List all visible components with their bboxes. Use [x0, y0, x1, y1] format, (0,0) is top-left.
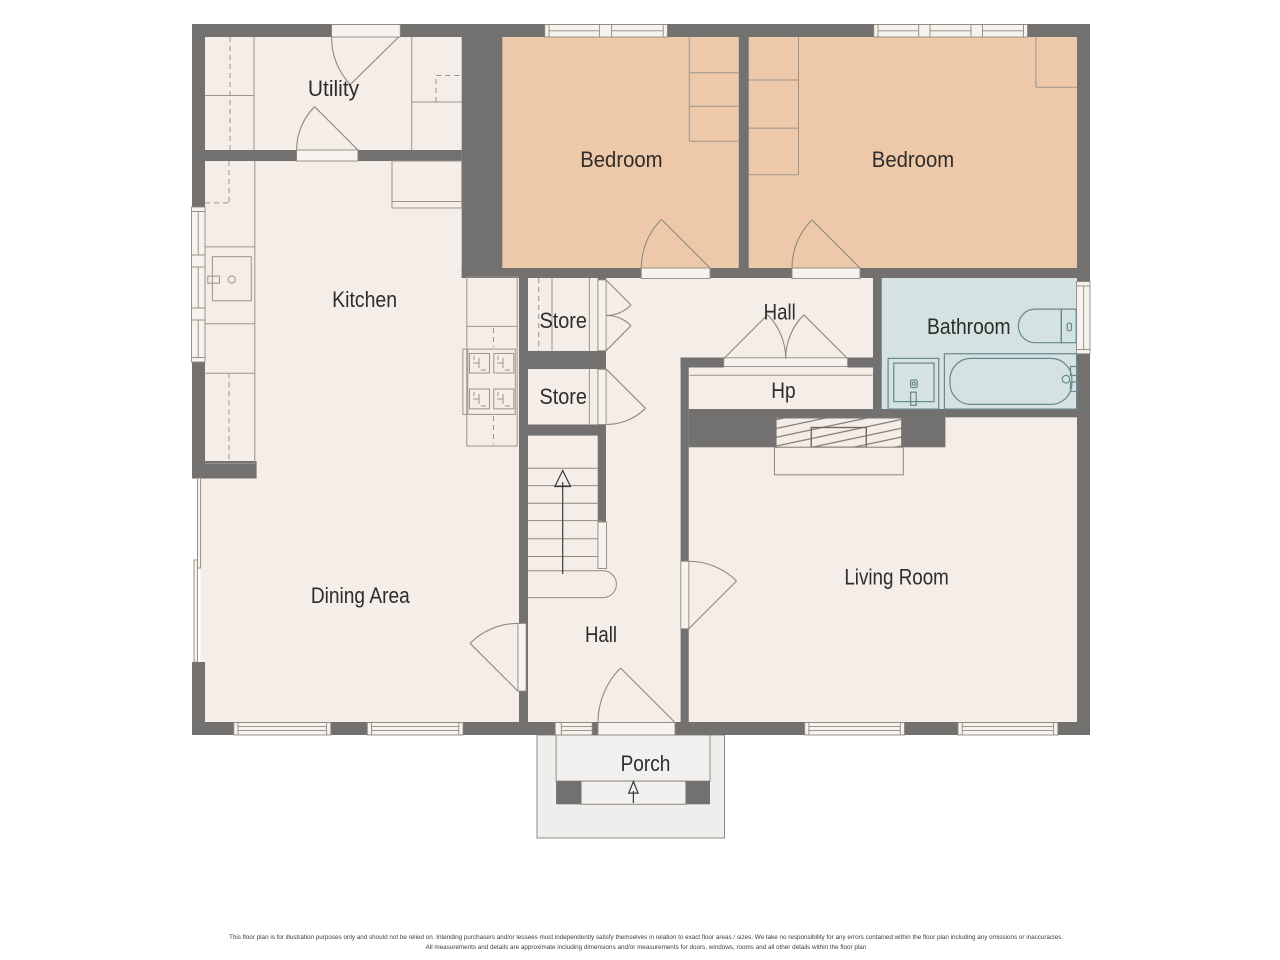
svg-text:Hp: Hp	[771, 378, 795, 403]
svg-text:Hall: Hall	[764, 300, 796, 325]
svg-text:Bathroom: Bathroom	[927, 314, 1011, 339]
svg-text:Utility: Utility	[308, 76, 359, 101]
svg-text:Hall: Hall	[585, 622, 617, 647]
svg-text:Kitchen: Kitchen	[332, 287, 397, 312]
svg-text:Store: Store	[539, 308, 587, 333]
svg-text:This floor plan is for illustr: This floor plan is for illustration purp…	[229, 934, 1063, 941]
svg-text:Dining Area: Dining Area	[311, 583, 411, 608]
svg-text:Bedroom: Bedroom	[872, 147, 954, 172]
svg-text:Porch: Porch	[621, 751, 671, 776]
svg-text:Living Room: Living Room	[844, 565, 949, 590]
svg-text:Bedroom: Bedroom	[580, 147, 662, 172]
svg-text:All measurements and details a: All measurements and details are approxi…	[426, 944, 867, 951]
svg-text:Store: Store	[539, 384, 587, 409]
